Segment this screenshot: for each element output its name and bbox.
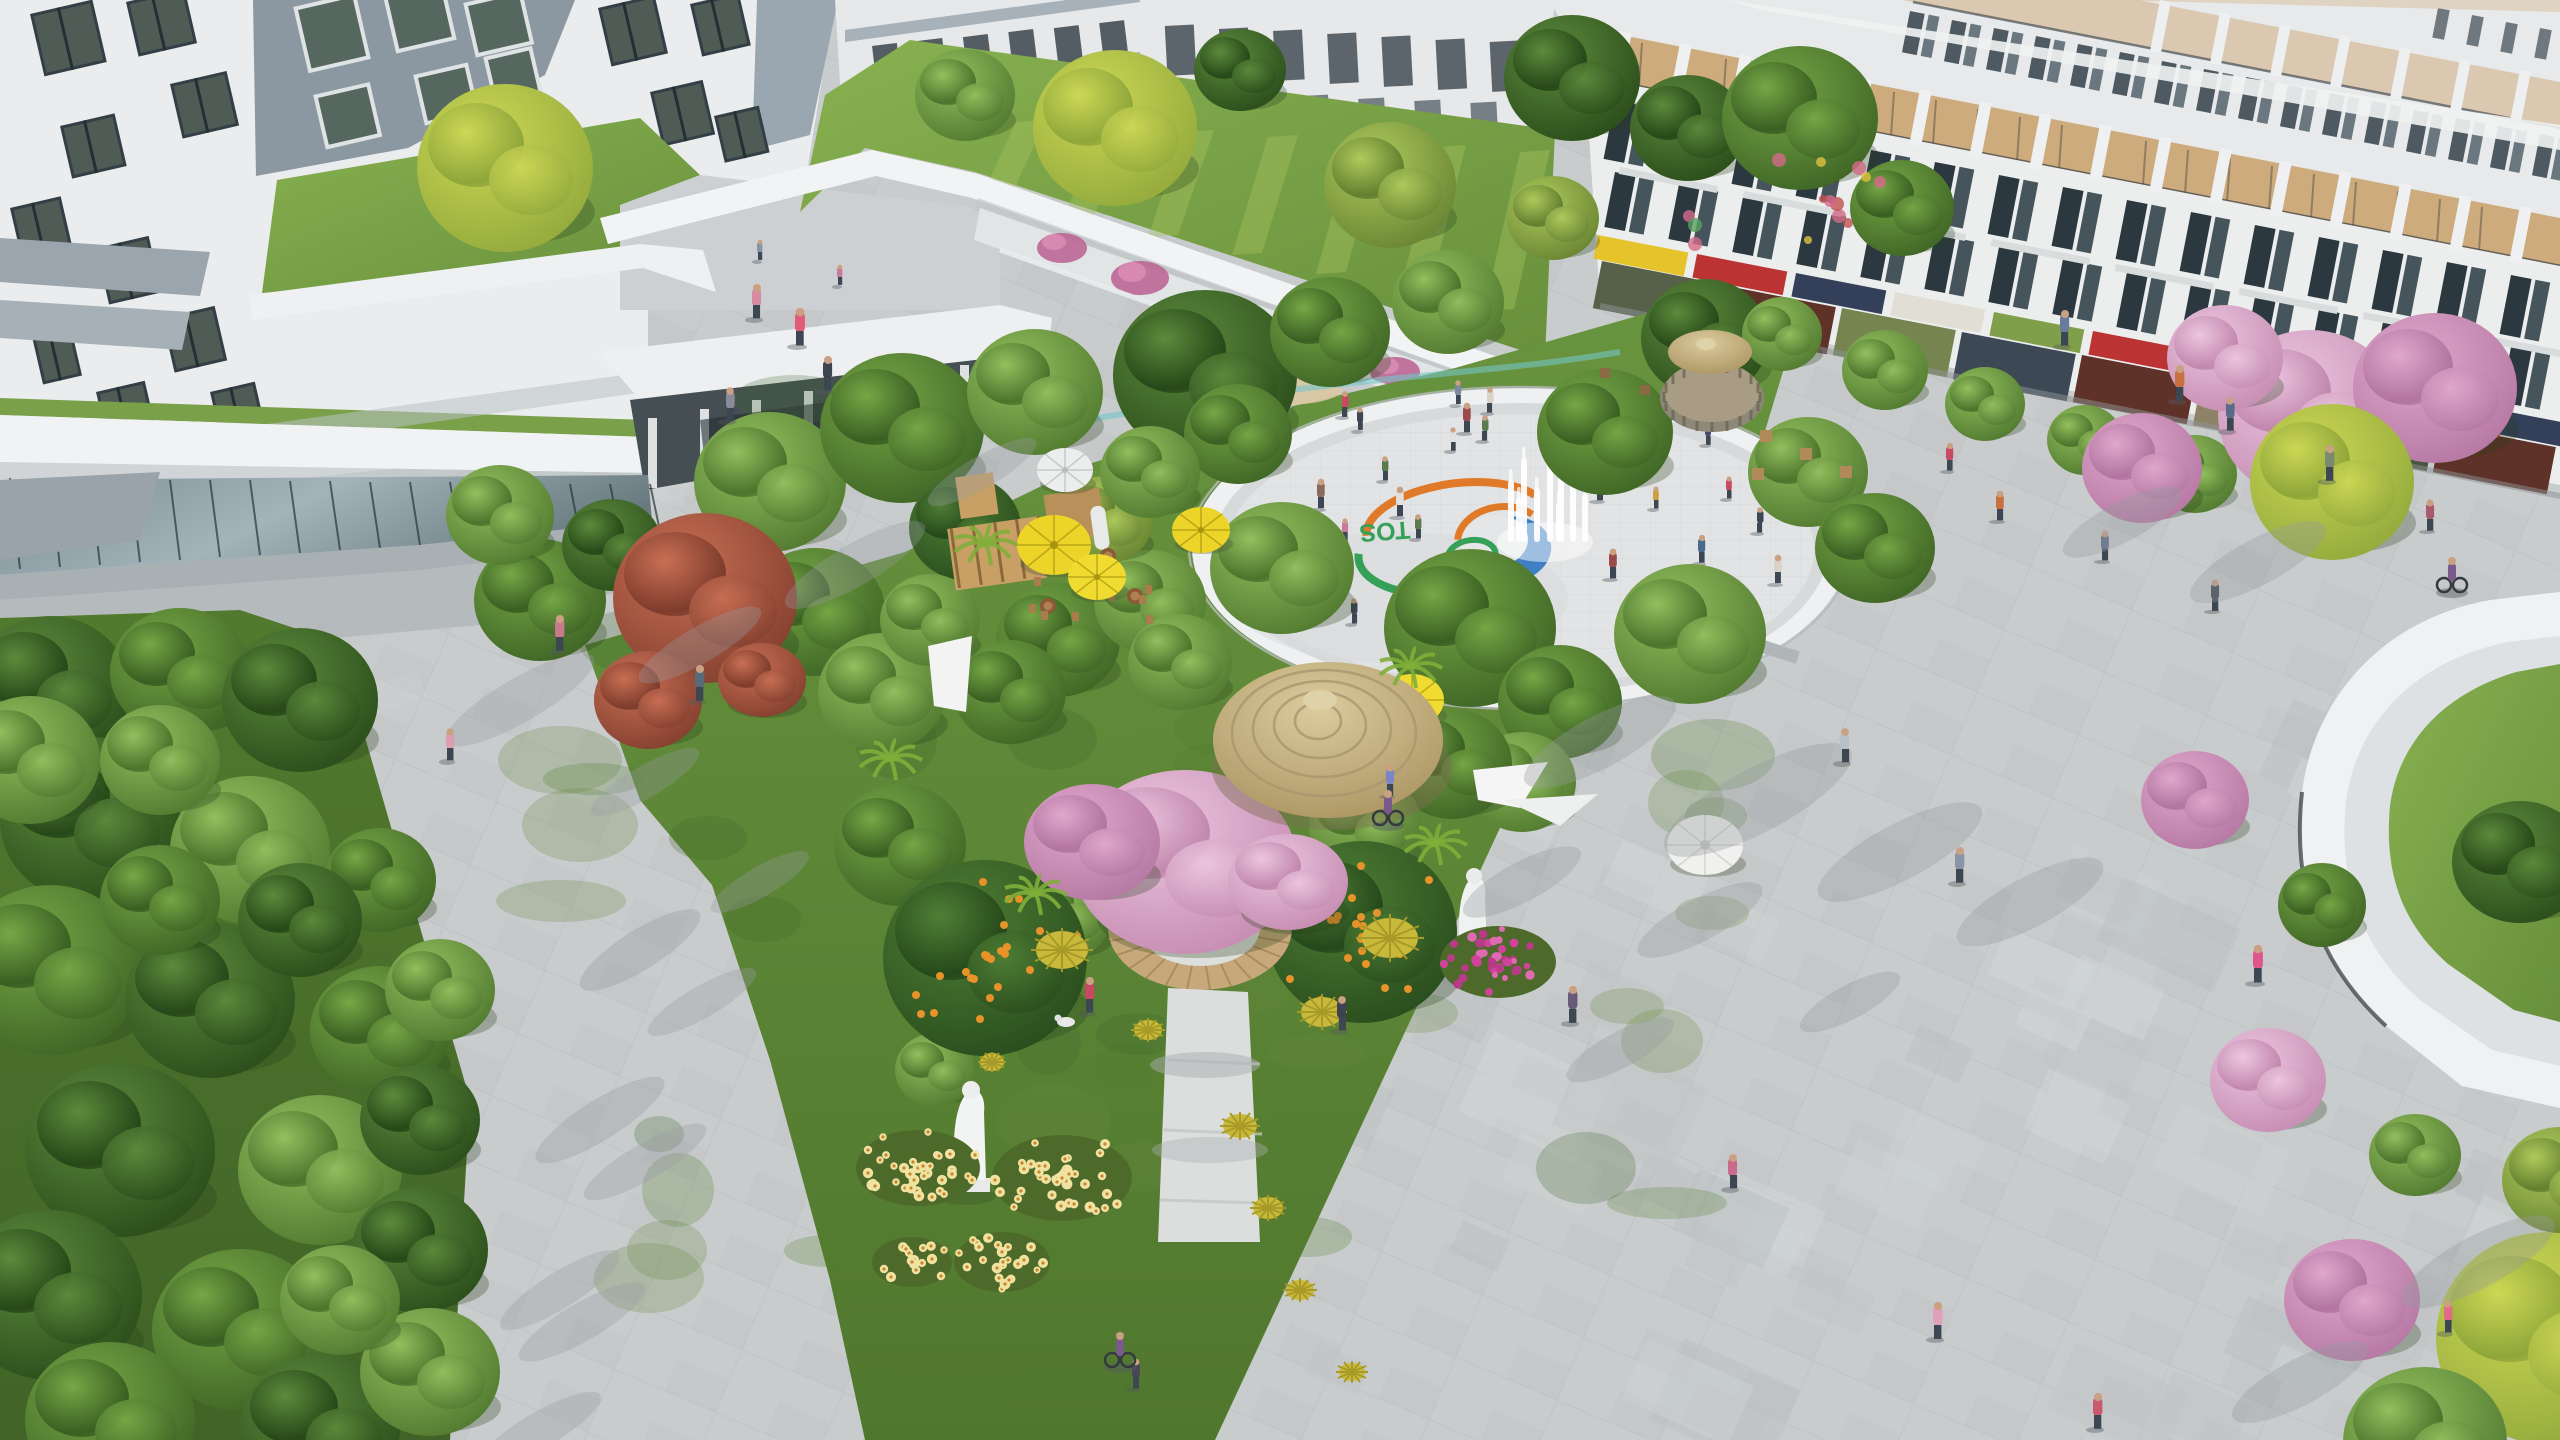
svg-text:TOS: TOS (1358, 515, 1411, 546)
